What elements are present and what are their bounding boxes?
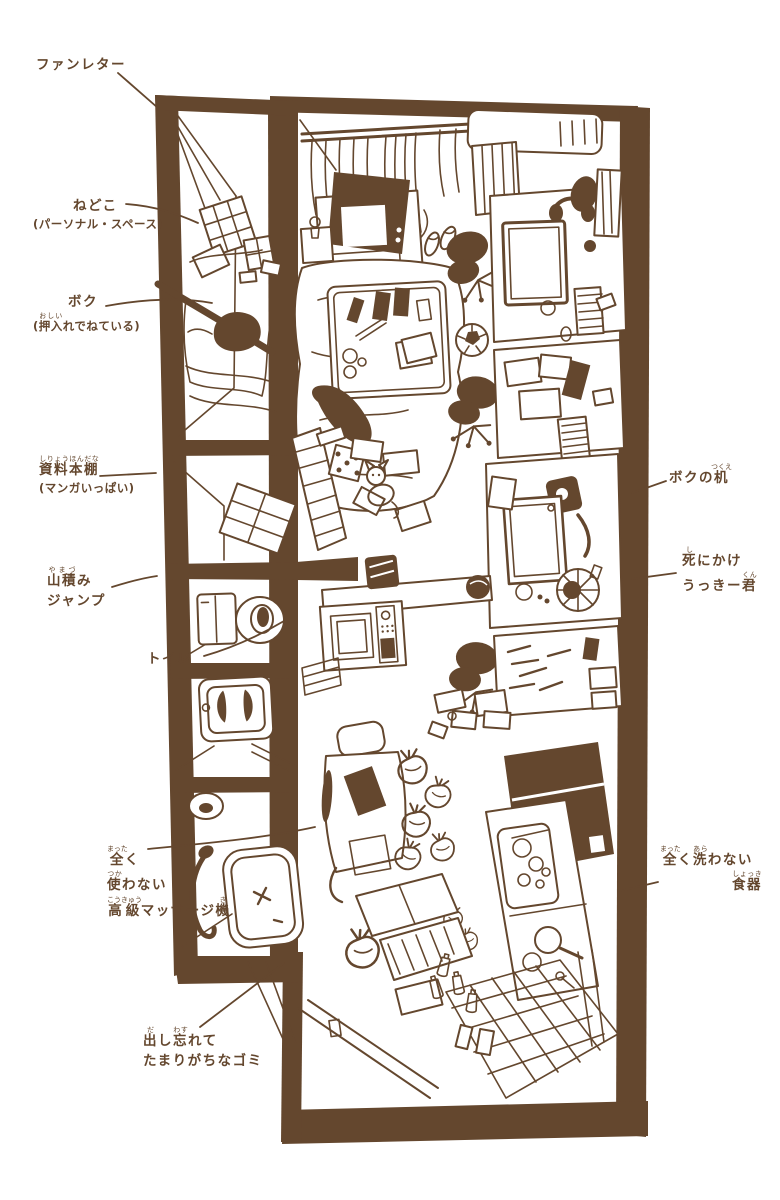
tv (328, 172, 410, 254)
ukki-line1: 死しにかけ (682, 546, 757, 571)
leader-fan-letter (118, 73, 158, 108)
boku-line2: (押入おしいれでねている) (33, 312, 140, 335)
shiryo-line1: 資料本棚しりょうほんだな (39, 455, 135, 480)
boku-line1: ボク (68, 292, 140, 312)
label-yamazumi-jump: 山積やまづみ ジャンプ (47, 566, 106, 612)
dishes-line1: 全まったく洗あらわない (660, 845, 762, 870)
computer-monitor (503, 221, 568, 305)
rice-cooker (364, 554, 399, 589)
yamazumi-line2: ジャンプ (47, 591, 106, 611)
keyboard (574, 287, 603, 335)
ukki-line2: うっきー君くん (682, 571, 757, 596)
pot (466, 575, 490, 599)
stationery-shelf (475, 626, 622, 729)
washing-machine (198, 676, 273, 742)
label-massage-machine: 全まったく 使つかわない 高級こうきゅうマッサージ機き (107, 845, 230, 921)
label-toilet: トイレ (147, 649, 192, 669)
nedoko-line2: (パーソナル・スペース) (33, 216, 163, 233)
low-table (327, 281, 451, 399)
massage-line2: 使つかわない (107, 870, 230, 895)
apartment-drawing (0, 0, 780, 1200)
desk-middle (494, 340, 624, 463)
nedoko-line1: ねどこ (73, 196, 163, 216)
massage-chair (320, 720, 405, 902)
dishes-line2: 食器しょっき (660, 870, 762, 895)
yamazumi-line1: 山積やまづみ (47, 566, 106, 591)
label-dishes: 全まったく洗あらわない 食器しょっき (660, 845, 762, 896)
fan-letter-text: ファンレター (36, 57, 126, 73)
toilet-room (176, 593, 284, 662)
kitchen-stub-wall (167, 557, 358, 581)
sleeping-person (188, 312, 261, 351)
massage-line3: 高級こうきゅうマッサージ機き (107, 896, 230, 921)
shiryo-line2: (マンガいっぱい) (39, 480, 135, 497)
label-fan-letter: ファンレター (36, 55, 126, 75)
label-nedoko: ねどこ (パーソナル・スペース) (33, 196, 163, 234)
microwave (320, 601, 406, 671)
garbage-line1: 出だし忘わすれて (143, 1026, 263, 1051)
label-boku: ボク (押入おしいれでねている) (33, 292, 140, 336)
garbage-line2: たまりがちなゴミ (143, 1051, 263, 1071)
soccer-ball (456, 324, 488, 356)
leader-yamazumi (112, 576, 157, 587)
pen-cup (584, 240, 596, 252)
label-garbage: 出だし忘わすれて たまりがちなゴミ (143, 1026, 263, 1072)
massage-line1: 全まったく (107, 845, 230, 870)
label-shiryo-hondana: 資料本棚しりょうほんだな (マンガいっぱい) (39, 455, 135, 498)
label-desk: ボクの机つくえ (669, 463, 732, 488)
apartment-illustration-page: ファンレター ねどこ (パーソナル・スペース) ボク (押入おしいれでねている)… (0, 0, 780, 1200)
toilet-text: トイレ (147, 651, 192, 667)
label-ukki: 死しにかけ うっきー君くん (682, 546, 757, 597)
desk-lower (486, 454, 622, 628)
